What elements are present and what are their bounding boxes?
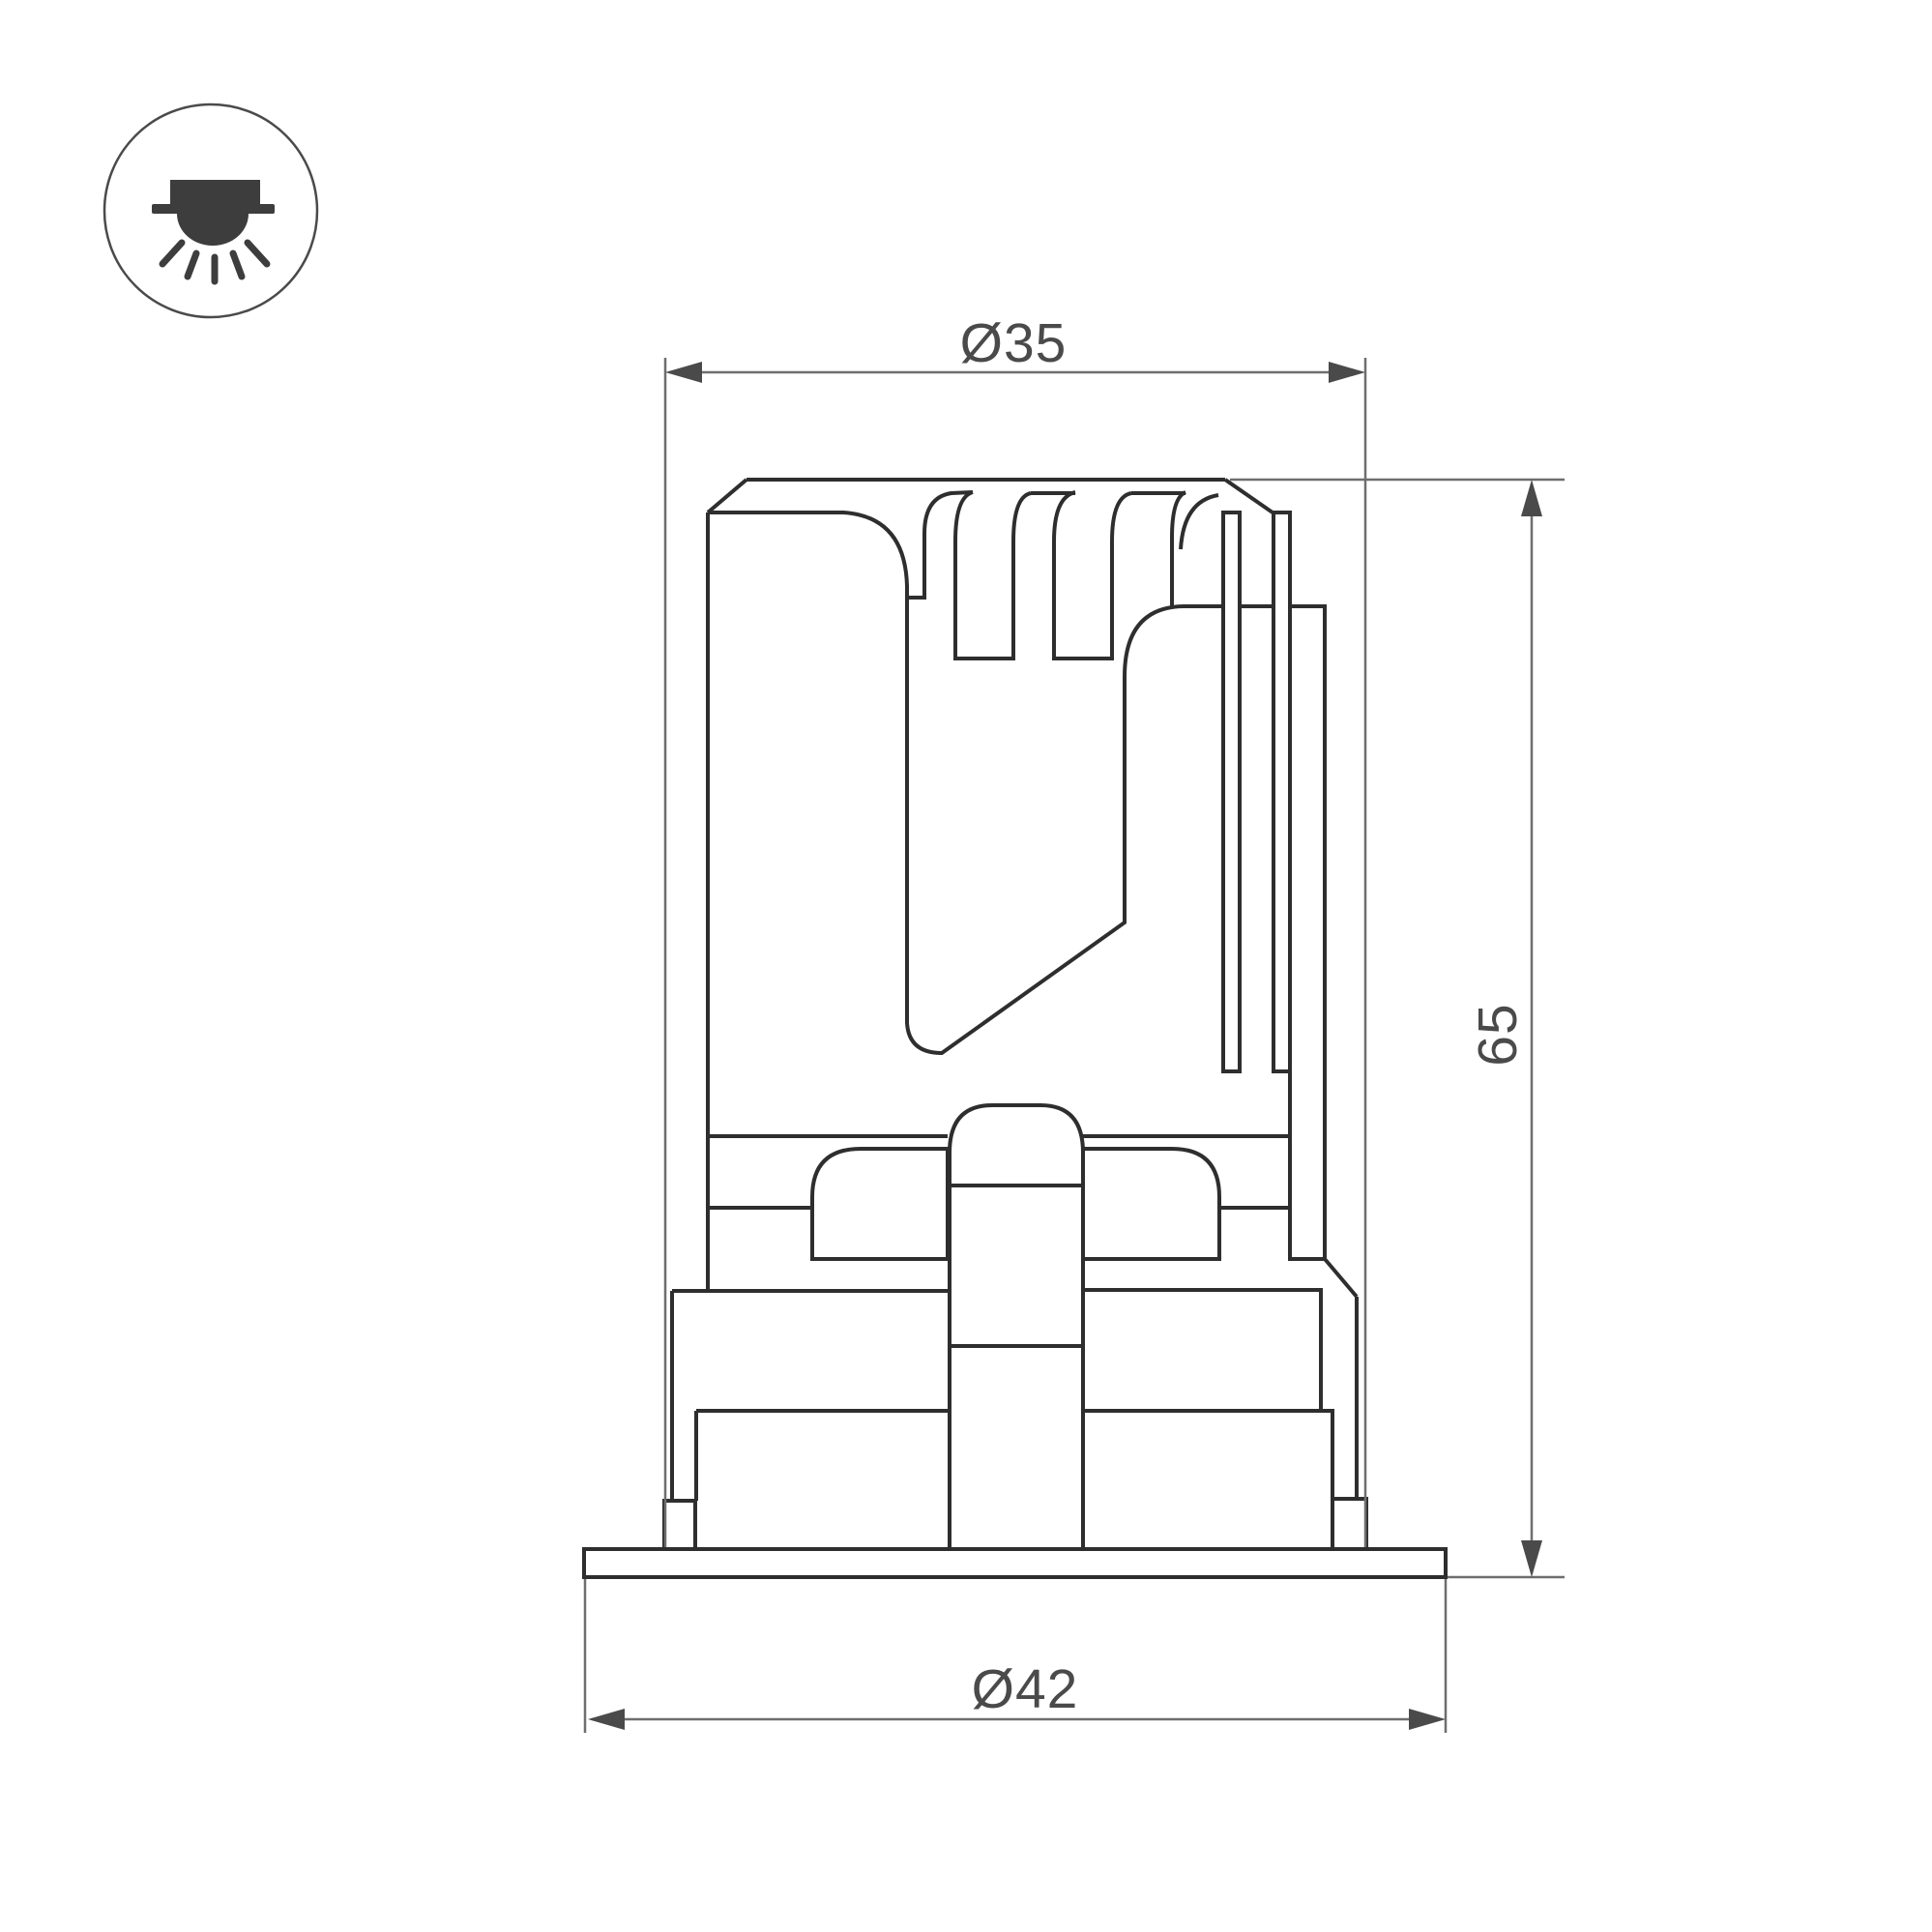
drawing-page: Ø35 65 Ø42	[0, 0, 1932, 1932]
can-left-foot	[664, 1501, 695, 1549]
arrowhead-right	[1409, 1709, 1446, 1730]
fin-slot-1	[907, 492, 973, 598]
clamp-right	[1083, 1149, 1219, 1259]
fin-edge-5	[1181, 495, 1218, 549]
thin-fin-1	[1223, 512, 1240, 1071]
recessed-downlight-icon	[104, 104, 317, 317]
can-right-foot	[1332, 1499, 1366, 1549]
arrowhead-left	[588, 1709, 625, 1730]
dimension-label-height: 65	[1467, 1003, 1529, 1066]
technical-drawing: Ø35 65 Ø42	[0, 0, 1932, 1932]
dimension-top-diameter: Ø35	[665, 312, 1365, 1547]
can-right-inner-step	[1083, 1411, 1332, 1499]
fin-slot-3	[1054, 492, 1131, 659]
arrowhead-down	[1521, 1540, 1542, 1577]
dimension-label-flange-diameter: Ø42	[972, 1658, 1079, 1720]
arrowhead-right	[1329, 362, 1365, 383]
can-right-top	[1083, 1290, 1321, 1411]
front-panel-and-cavity	[708, 512, 1290, 1053]
heatsink-left-bevel	[708, 480, 746, 512]
dimension-label-top-diameter: Ø35	[960, 312, 1068, 374]
arrowhead-left	[665, 362, 702, 383]
fin-slot-2	[955, 492, 1031, 659]
rear-column	[1290, 606, 1325, 1259]
trim-flange	[584, 1549, 1446, 1577]
icon-ceiling-bar	[152, 204, 275, 214]
can-right-chamfer	[1325, 1259, 1357, 1297]
fixture-outline	[584, 480, 1446, 1577]
stem-cap	[950, 1105, 1083, 1186]
heatsink-right-bevel	[1225, 480, 1273, 512]
clamp-left	[812, 1149, 948, 1259]
arrowhead-up	[1521, 480, 1542, 516]
icon-lamp-body	[170, 180, 260, 206]
thin-fin-2	[1273, 512, 1290, 1071]
dimension-flange-diameter: Ø42	[585, 1579, 1446, 1733]
can-left-inner-step	[696, 1411, 948, 1501]
fin-edge-4	[1172, 492, 1186, 606]
